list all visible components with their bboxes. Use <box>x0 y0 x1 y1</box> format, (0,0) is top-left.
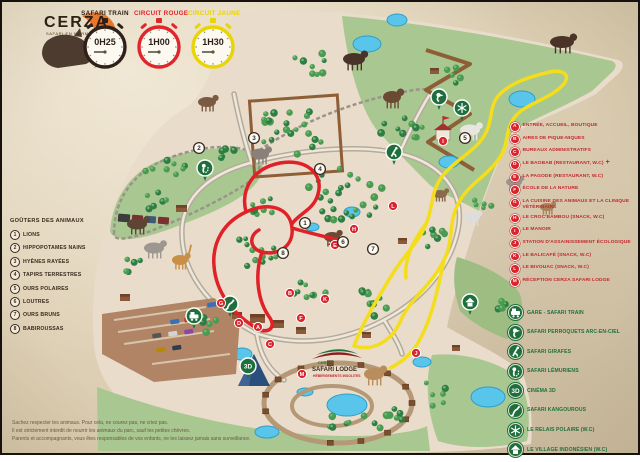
feeding-item-label: HYÈNES RAYÉES <box>23 259 69 265</box>
svg-text:K: K <box>323 297 327 303</box>
map-marker-facility-I: I <box>438 136 447 145</box>
map-marker-feeding-2: 2 <box>194 143 205 154</box>
rule-line: Il est strictement interdit de nourrir l… <box>12 427 342 435</box>
facility-letter-badge: D <box>510 160 520 170</box>
svg-text:D: D <box>237 321 241 327</box>
feeding-item: 8 BABIROUSSAS <box>10 324 106 334</box>
facility-item-label: LE BALICAFÉ (SNACK, W.C) <box>523 252 592 259</box>
kangaroo-icon <box>508 403 523 418</box>
facility-item-label: ENTRÉE, ACCUEIL, BOUTIQUE <box>523 122 598 129</box>
parrot-icon <box>508 325 523 340</box>
map-marker-feeding-6: 6 <box>338 237 349 248</box>
stopwatch-icon: 1H00 <box>134 18 184 70</box>
svg-text:B: B <box>288 291 292 297</box>
map-marker-feeding-7: 7 <box>368 244 379 255</box>
facility-item-label: LE BAOBAB (RESTAURANT, W.C)+ <box>523 160 610 167</box>
facility-item: E LA PAGODE (RESTAURANT, W.C) <box>510 173 638 183</box>
safari-item: 3D CINÉMA 3D <box>508 383 638 398</box>
zoo-park-map: CERZA SAFARI LODGE HÉBERGEMENTS INSOLITE… <box>0 0 640 455</box>
svg-text:CERZA: CERZA <box>318 360 332 365</box>
facility-letter-badge: A <box>510 122 520 132</box>
feeding-item-label: LOUTRES <box>23 299 49 305</box>
svg-text:M: M <box>300 372 305 378</box>
map-marker-facility-G: G <box>216 298 225 307</box>
feeding-item-label: OURS BRUNS <box>23 312 60 318</box>
feeding-number-badge: 1 <box>10 230 20 240</box>
feeding-times-legend: GOÛTERS DES ANIMAUX 1 LIONS2 HIPPOPOTAME… <box>10 218 106 337</box>
map-marker-feeding-5: 5 <box>460 133 471 144</box>
facility-item-label: ÉCOLE DE LA NATURE <box>523 185 579 192</box>
svg-text:1H30: 1H30 <box>202 37 224 47</box>
svg-text:L: L <box>391 204 395 210</box>
safari-item-label: LE VILLAGE INDONÉSIEN (W.C) <box>527 447 607 453</box>
safari-item-label: SAFARI KANGOUROUS <box>527 407 586 413</box>
safari-item-label: SAFARI LÉMURIENS <box>527 368 579 374</box>
facility-letter-badge: J <box>510 239 520 249</box>
svg-text:7: 7 <box>371 246 375 253</box>
feeding-item: 1 LIONS <box>10 230 106 240</box>
feeding-number-badge: 5 <box>10 284 20 294</box>
feeding-item-label: TAPIRS TERRESTRES <box>23 272 81 278</box>
facility-item-label: STATION D'ASSAINISSEMENT ÉCOLOGIQUE <box>523 239 631 246</box>
feeding-item: 4 TAPIRS TERRESTRES <box>10 270 106 280</box>
facility-item: M RÉCEPTION CERZA SAFARI LODGE <box>510 277 638 287</box>
facility-letter-badge: K <box>510 252 520 262</box>
safari-item-label: SAFARI PERROQUETS ARC-EN-CIEL <box>527 329 620 335</box>
feeding-item-label: OURS POLAIRES <box>23 286 69 292</box>
svg-text:C: C <box>268 342 272 348</box>
feeding-number-badge: 3 <box>10 257 20 267</box>
facility-item-label: LE BIVOUAC (SNACK, W.C) <box>523 264 589 271</box>
safari-item: SAFARI KANGOUROUS <box>508 403 638 418</box>
facility-letter-badge: B <box>510 135 520 145</box>
svg-text:J: J <box>414 351 417 357</box>
rule-line: Parents et accompagnants, vous êtes resp… <box>12 435 342 443</box>
svg-text:SAFARI LODGE: SAFARI LODGE <box>312 367 357 373</box>
facility-item-label: LE CROC'BAMBOU (SNACK, W.C) <box>523 214 605 221</box>
safari-attractions-legend: GARE - SAFARI TRAIN SAFARI PERROQUETS AR… <box>508 305 638 462</box>
facility-item: A ENTRÉE, ACCUEIL, BOUTIQUE <box>510 122 638 132</box>
svg-text:1H00: 1H00 <box>148 37 170 47</box>
svg-text:E: E <box>333 243 337 249</box>
svg-text:5: 5 <box>463 135 467 142</box>
svg-text:1: 1 <box>303 220 307 227</box>
stopwatch-icon: 0H25 <box>80 18 130 70</box>
feeding-item-label: BABIROUSSAS <box>23 326 64 332</box>
facility-letter-badge: E <box>510 173 520 183</box>
facility-letter-badge: L <box>510 264 520 274</box>
svg-text:2: 2 <box>197 145 201 152</box>
facility-letter-badge: M <box>510 277 520 287</box>
map-marker-facility-B: B <box>285 288 294 297</box>
feeding-legend-title: GOÛTERS DES ANIMAUX <box>10 218 106 224</box>
svg-text:F: F <box>299 316 303 322</box>
map-marker-facility-D: D <box>234 318 243 327</box>
first-aid-icon: + <box>606 159 610 166</box>
facilities-legend: A ENTRÉE, ACCUEIL, BOUTIQUEB AIRES DE PI… <box>510 122 638 290</box>
facility-item: J STATION D'ASSAINISSEMENT ÉCOLOGIQUE <box>510 239 638 249</box>
safari-item-label: SAFARI GIRAFES <box>527 349 571 355</box>
facility-item-label: BUREAUX ADMINISTRATIFS <box>523 147 592 154</box>
map-marker-feeding-4: 4 <box>315 164 326 175</box>
route-duration-legend: SAFARI TRAIN 0H25 CIRCUIT ROUGE 1H00 <box>80 10 238 75</box>
safari-item: SAFARI GIRAFES <box>508 344 638 359</box>
feeding-number-badge: 8 <box>10 324 20 334</box>
svg-text:G: G <box>219 301 223 307</box>
feeding-number-badge: 4 <box>10 270 20 280</box>
feeding-number-badge: 2 <box>10 243 20 253</box>
svg-text:A: A <box>256 325 260 331</box>
safari-item: LE RELAIS POLAIRE (W.C) <box>508 423 638 438</box>
facility-item: G LA CUISINE DES ANIMAUX ET LA CLINIQUE … <box>510 198 638 210</box>
map-marker-facility-K: K <box>320 294 329 303</box>
feeding-item: 3 HYÈNES RAYÉES <box>10 257 106 267</box>
safari-item: GARE - SAFARI TRAIN <box>508 305 638 320</box>
safari-item-label: LE RELAIS POLAIRE (W.C) <box>527 427 594 433</box>
facility-letter-badge: G <box>510 198 520 208</box>
svg-text:3D: 3D <box>511 388 520 395</box>
facility-item: H LE CROC'BAMBOU (SNACK, W.C) <box>510 214 638 224</box>
map-marker-facility-F: F <box>296 313 305 322</box>
lemur-icon <box>508 364 523 379</box>
svg-text:6: 6 <box>341 239 345 246</box>
circuit-safari-train: SAFARI TRAIN 0H25 <box>80 10 130 75</box>
facility-item-label: LE MANOIR <box>523 226 551 233</box>
snowflake-icon <box>508 423 523 438</box>
svg-text:0H25: 0H25 <box>94 37 116 47</box>
facility-item: K LE BALICAFÉ (SNACK, W.C) <box>510 252 638 262</box>
svg-text:8: 8 <box>281 250 285 257</box>
facility-item-label: LA CUISINE DES ANIMAUX ET LA CLINIQUE VÉ… <box>523 198 639 210</box>
giraffe-icon <box>508 344 523 359</box>
map-marker-facility-H: H <box>349 224 358 233</box>
svg-text:3: 3 <box>252 135 256 142</box>
safari-item: SAFARI LÉMURIENS <box>508 364 638 379</box>
map-marker-facility-C: C <box>265 339 274 348</box>
facility-item-label: RÉCEPTION CERZA SAFARI LODGE <box>523 277 610 284</box>
facility-item: F ÉCOLE DE LA NATURE <box>510 185 638 195</box>
facility-letter-badge: I <box>510 226 520 236</box>
visitor-rules: Sachez respecter les animaux. Pour cela,… <box>12 419 342 443</box>
safari-item-label: CINÉMA 3D <box>527 388 556 394</box>
facility-item: C BUREAUX ADMINISTRATIFS <box>510 147 638 157</box>
map-marker-facility-L: L <box>388 201 397 210</box>
circuit-name: SAFARI TRAIN <box>80 10 130 17</box>
circuit-jaune: CIRCUIT JAUNE 1H30 <box>188 10 238 75</box>
facility-item-label: LA PAGODE (RESTAURANT, W.C) <box>523 173 604 180</box>
svg-text:3D: 3D <box>244 364 253 371</box>
feeding-item: 2 HIPPOPOTAMES NAINS <box>10 243 106 253</box>
train-icon <box>508 305 523 320</box>
svg-text:4: 4 <box>318 166 322 173</box>
circuit-rouge: CIRCUIT ROUGE 1H00 <box>134 10 184 75</box>
map-marker-feeding-8: 8 <box>278 248 289 259</box>
map-marker-feeding-1: 1 <box>300 218 311 229</box>
stopwatch-icon: 1H30 <box>188 18 238 70</box>
map-marker-facility-M: M <box>297 369 306 378</box>
map-marker-feeding-3: 3 <box>249 133 260 144</box>
feeding-item: 6 LOUTRES <box>10 297 106 307</box>
facility-item: L LE BIVOUAC (SNACK, W.C) <box>510 264 638 274</box>
facility-item: B AIRES DE PIQUE-NIQUES <box>510 135 638 145</box>
facility-item-label: AIRES DE PIQUE-NIQUES <box>523 135 585 142</box>
feeding-item: 7 OURS BRUNS <box>10 310 106 320</box>
cinema-3d-icon: 3D <box>508 383 523 398</box>
safari-item-label: GARE - SAFARI TRAIN <box>527 310 584 316</box>
feeding-item-label: LIONS <box>23 232 40 238</box>
safari-item: SAFARI PERROQUETS ARC-EN-CIEL <box>508 325 638 340</box>
feeding-number-badge: 6 <box>10 297 20 307</box>
facility-letter-badge: F <box>510 185 520 195</box>
facility-letter-badge: C <box>510 147 520 157</box>
facility-item: D LE BAOBAB (RESTAURANT, W.C)+ <box>510 160 638 170</box>
facility-letter-badge: H <box>510 214 520 224</box>
map-marker-facility-A: A <box>253 322 262 331</box>
svg-text:HÉBERGEMENTS INSOLITES: HÉBERGEMENTS INSOLITES <box>313 373 361 378</box>
feeding-item: 5 OURS POLAIRES <box>10 284 106 294</box>
feeding-number-badge: 7 <box>10 310 20 320</box>
map-marker-facility-J: J <box>411 348 420 357</box>
svg-text:H: H <box>352 227 356 233</box>
circuit-name: CIRCUIT ROUGE <box>134 10 184 17</box>
circuit-name: CIRCUIT JAUNE <box>188 10 238 17</box>
facility-item: I LE MANOIR <box>510 226 638 236</box>
rule-line: Sachez respecter les animaux. Pour cela,… <box>12 419 342 427</box>
feeding-item-label: HIPPOPOTAMES NAINS <box>23 245 86 251</box>
